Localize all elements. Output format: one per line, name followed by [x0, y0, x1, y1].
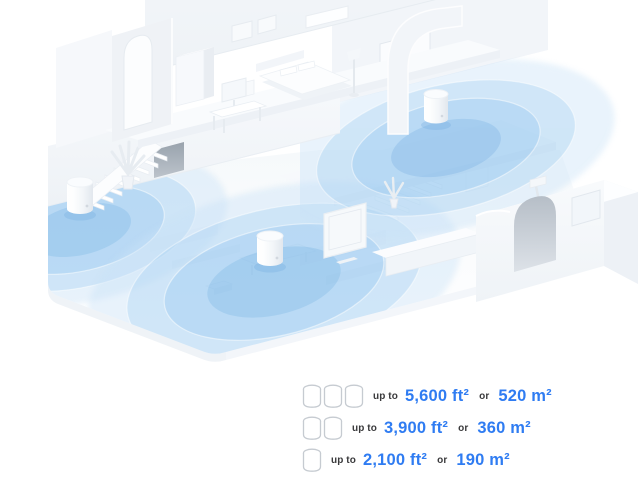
- unit-icons-x1: [302, 448, 322, 473]
- wifi-unit-living-room: [254, 231, 286, 273]
- wifi-unit-icon: [302, 384, 322, 409]
- coverage-legend: up to 5,600 ft² or 520 m² up to 3,900 ft…: [302, 383, 552, 473]
- conjunction-label: or: [458, 423, 468, 434]
- metric-area-value: 360 m²: [477, 419, 530, 438]
- arch-doorway-right: [514, 196, 556, 272]
- prefix-label: up to: [352, 423, 377, 434]
- unit-icons-x2: [302, 416, 343, 441]
- imperial-area-value: 2,100 ft²: [363, 451, 427, 470]
- coverage-row-1-unit: up to 2,100 ft² or 190 m²: [302, 447, 552, 473]
- metric-area-value: 190 m²: [456, 451, 509, 470]
- prefix-label: up to: [331, 455, 356, 466]
- imperial-area-value: 3,900 ft²: [384, 419, 448, 438]
- conjunction-label: or: [479, 391, 489, 402]
- unit-icons-x3: [302, 384, 364, 409]
- conjunction-label: or: [437, 455, 447, 466]
- marketing-graphic: up to 5,600 ft² or 520 m² up to 3,900 ft…: [0, 0, 640, 480]
- wifi-unit-icon: [302, 416, 322, 441]
- wifi-unit-left-room: [64, 177, 96, 221]
- arch-doorway-left: [112, 18, 172, 142]
- wifi-unit-upper-landing: [421, 90, 451, 131]
- wifi-unit-icon: [323, 416, 343, 441]
- metric-area-value: 520 m²: [498, 387, 551, 406]
- prefix-label: up to: [373, 391, 398, 402]
- wardrobe: [176, 47, 214, 106]
- imperial-area-value: 5,600 ft²: [405, 387, 469, 406]
- wifi-unit-icon: [302, 448, 322, 473]
- wifi-unit-icon: [323, 384, 343, 409]
- coverage-row-3-units: up to 5,600 ft² or 520 m²: [302, 383, 552, 409]
- coverage-row-2-units: up to 3,900 ft² or 360 m²: [302, 415, 552, 441]
- wifi-unit-icon: [344, 384, 364, 409]
